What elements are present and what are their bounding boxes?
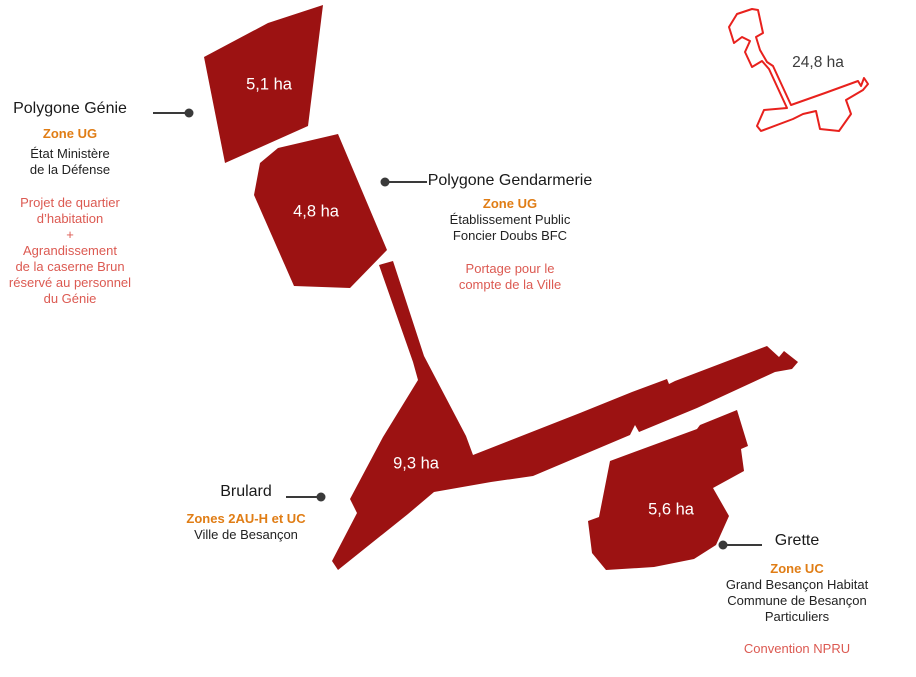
gendarmerie-owner-line: Foncier Doubs BFC <box>415 228 605 244</box>
grette-owner-line: Particuliers <box>707 609 887 625</box>
area-label-brulard: 9,3 ha <box>393 455 439 474</box>
genie-note-line: du Génie <box>0 291 145 307</box>
genie-note-line: Agrandissement <box>0 243 145 259</box>
grette-zone: Zone UC <box>707 561 887 577</box>
genie-title: Polygone Génie <box>0 99 145 118</box>
genie-owner-line: État Ministère <box>0 146 145 162</box>
brulard-zone: Zones 2AU-H et UC <box>161 511 331 527</box>
genie-owner-line: de la Défense <box>0 162 145 178</box>
leader-genie <box>153 109 194 118</box>
gendarmerie-note-line: compte de la Ville <box>415 277 605 293</box>
gendarmerie-owner-line: Établissement Public <box>415 212 605 228</box>
brulard-title: Brulard <box>161 482 331 501</box>
grette-owner-line: Grand Besançon Habitat <box>707 577 887 593</box>
leader-dot-gendarmerie <box>381 178 390 187</box>
brulard-owner-line: Ville de Besançon <box>161 527 331 543</box>
gendarmerie-title: Polygone Gendarmerie <box>415 171 605 190</box>
grette-title: Grette <box>707 531 887 550</box>
genie-note-line: + <box>0 227 145 243</box>
genie-zone: Zone UG <box>0 126 145 142</box>
gendarmerie-zone: Zone UG <box>415 196 605 212</box>
grette-owner-line: Commune de Besançon <box>707 593 887 609</box>
grette-label-block: Grette Zone UC Grand Besançon Habitat Co… <box>707 531 887 657</box>
parcel-map: 5,1 ha 4,8 ha 9,3 ha 5,6 ha 24,8 ha Poly… <box>0 0 916 677</box>
leader-dot-genie <box>185 109 194 118</box>
genie-note-line: réservé au personnel <box>0 275 145 291</box>
gendarmerie-note-line: Portage pour le <box>415 261 605 277</box>
brulard-label-block: Brulard Zones 2AU-H et UC Ville de Besan… <box>161 482 331 543</box>
area-label-overview: 24,8 ha <box>792 54 844 72</box>
genie-note-line: de la caserne Brun <box>0 259 145 275</box>
area-label-gendarmerie: 4,8 ha <box>293 203 339 222</box>
genie-label-block: Polygone Génie Zone UG État Ministère de… <box>0 99 145 307</box>
area-label-genie: 5,1 ha <box>246 76 292 95</box>
genie-note-line: d’habitation <box>0 211 145 227</box>
grette-note-line: Convention NPRU <box>707 641 887 657</box>
genie-note-line: Projet de quartier <box>0 195 145 211</box>
gendarmerie-label-block: Polygone Gendarmerie Zone UG Établisseme… <box>415 171 605 293</box>
area-label-grette: 5,6 ha <box>648 501 694 520</box>
